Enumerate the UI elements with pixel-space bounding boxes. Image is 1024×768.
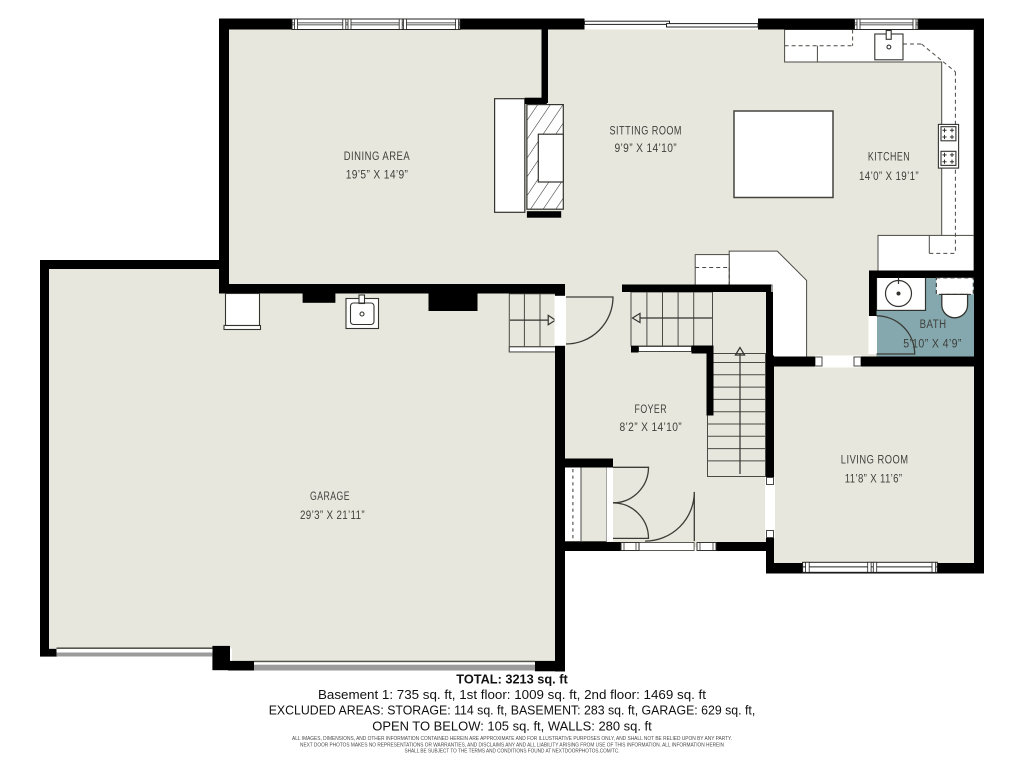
svg-text:11’8” X 11’6”: 11’8” X 11’6” bbox=[845, 473, 903, 485]
svg-text:OPEN TO BELOW: 105 sq. ft, WAL: OPEN TO BELOW: 105 sq. ft, WALLS: 280 sq… bbox=[372, 718, 652, 733]
svg-text:GARAGE: GARAGE bbox=[310, 491, 350, 503]
svg-text:KITCHEN: KITCHEN bbox=[868, 152, 910, 164]
svg-text:TOTAL: 3213 sq. ft: TOTAL: 3213 sq. ft bbox=[456, 671, 568, 686]
svg-text:19’5” X 14’9”: 19’5” X 14’9” bbox=[346, 170, 409, 182]
svg-text:SITTING ROOM: SITTING ROOM bbox=[610, 126, 683, 138]
svg-text:5’10” X 4’9”: 5’10” X 4’9” bbox=[903, 339, 962, 351]
svg-text:SHALL BE SUBJECT TO THE TERMS: SHALL BE SUBJECT TO THE TERMS AND CONDIT… bbox=[405, 749, 620, 755]
svg-text:DINING AREA: DINING AREA bbox=[344, 151, 411, 163]
svg-text:29’3” X 21’11”: 29’3” X 21’11” bbox=[300, 510, 365, 522]
svg-text:ALL IMAGES, DIMENSIONS, AND OT: ALL IMAGES, DIMENSIONS, AND OTHER INFORM… bbox=[292, 736, 732, 742]
svg-text:BATH: BATH bbox=[920, 319, 947, 331]
svg-text:14’0” X 19’1”: 14’0” X 19’1” bbox=[859, 171, 919, 183]
svg-text:LIVING ROOM: LIVING ROOM bbox=[841, 455, 909, 467]
svg-text:FOYER: FOYER bbox=[635, 404, 668, 416]
svg-text:Basement 1: 735 sq. ft, 1st fl: Basement 1: 735 sq. ft, 1st floor: 1009 … bbox=[318, 687, 706, 702]
svg-text:EXCLUDED AREAS: STORAGE: 114 s: EXCLUDED AREAS: STORAGE: 114 sq. ft, BAS… bbox=[269, 703, 756, 718]
svg-text:8’2” X 14’10”: 8’2” X 14’10” bbox=[620, 422, 683, 434]
svg-text:NEXT DOOR PHOTOS MAKES NO REPR: NEXT DOOR PHOTOS MAKES NO REPRESENTATION… bbox=[300, 742, 724, 748]
svg-text:9’9” X 14’10”: 9’9” X 14’10” bbox=[615, 143, 678, 155]
